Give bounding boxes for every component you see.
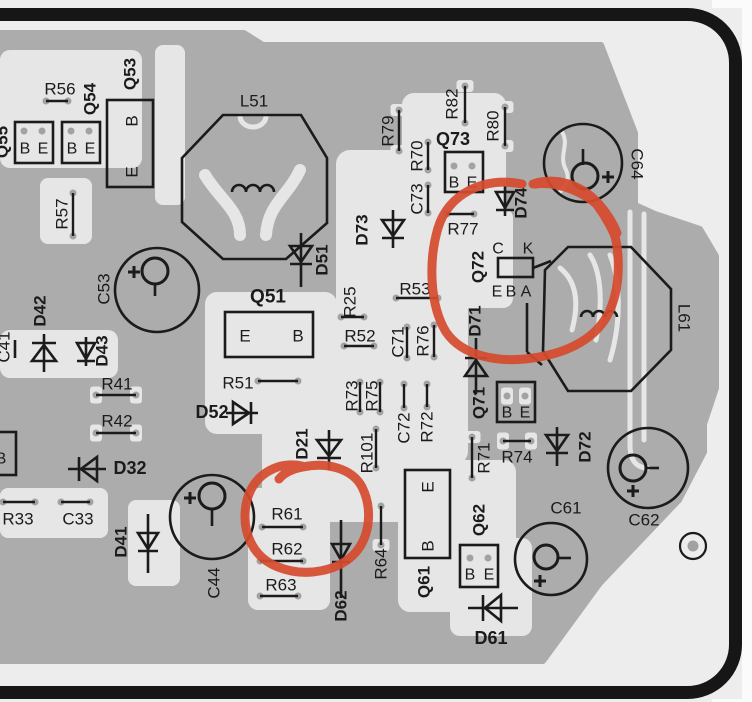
label-B-71: B: [292, 327, 303, 346]
label-D74-27: D74: [512, 187, 531, 219]
label-E-69: E: [123, 166, 142, 177]
label-D21-51: D21: [293, 428, 312, 459]
label-R57-4: R57: [53, 198, 72, 229]
label-Q53-3: Q53: [121, 58, 140, 90]
label-B-32: B: [506, 284, 517, 301]
label-D41-56: D41: [112, 526, 131, 557]
label-E-78: E: [419, 481, 438, 492]
label-R72-18: R72: [418, 411, 437, 442]
label-C61-42: C61: [550, 499, 581, 518]
label-D51-6: D51: [313, 244, 332, 275]
label-R62-49: R62: [271, 540, 302, 559]
label-B-64: B: [20, 141, 31, 158]
label-L61-36: L61: [675, 304, 694, 332]
label-C62-41: C62: [628, 511, 659, 530]
label-Q71-37: Q71: [470, 387, 489, 419]
label-E-77: E: [484, 567, 495, 584]
label-E-70: E: [239, 327, 250, 346]
label-D32-55: D32: [113, 458, 146, 478]
page-corner-white-top: [712, 0, 752, 8]
label-R56-1: R56: [44, 80, 75, 99]
label-Q62-43: Q62: [470, 504, 489, 536]
label-B-72: B: [449, 175, 460, 192]
label-E-65: E: [38, 141, 49, 158]
label-D72-40: D72: [576, 431, 595, 462]
label-B-74: B: [502, 405, 513, 422]
label-R25-10: R25: [341, 286, 360, 317]
label-R51-8: R51: [222, 374, 253, 393]
label-L51-5: L51: [240, 92, 268, 111]
label-Q73-26: Q73: [436, 129, 470, 149]
label-Q55-0: Q55: [0, 126, 12, 158]
label-R76-14: R76: [414, 325, 433, 356]
label-D43-59: D43: [93, 335, 112, 366]
label-R71-38: R71: [475, 442, 494, 473]
label-B-66: B: [67, 141, 78, 158]
label-R61-48: R61: [271, 505, 302, 524]
label-R73-15: R73: [343, 380, 362, 411]
label-C71-13: C71: [389, 326, 408, 357]
label-R77-20: R77: [447, 220, 478, 239]
label-Q54-2: Q54: [81, 82, 100, 115]
page-edge-white: [742, 0, 752, 702]
label-Q51-7: Q51: [250, 287, 286, 308]
label-R63-50: R63: [265, 576, 296, 595]
pcb-layout-svg: Q55R56Q54Q53R57L51D51Q51R51D52R25R52R53C…: [0, 0, 752, 702]
label-D73-19: D73: [353, 214, 372, 245]
label-R80-25: R80: [484, 110, 503, 141]
label-R52-11: R52: [344, 327, 375, 346]
label-D42-58: D42: [31, 295, 50, 326]
label-B-80: B: [0, 451, 6, 468]
label-E-67: E: [85, 141, 96, 158]
pcb-diagram: Q55R56Q54Q53R57L51D51Q51R51D52R25R52R53C…: [0, 0, 752, 702]
label-C64-28: C64: [628, 148, 647, 179]
label-B-79: B: [419, 540, 438, 551]
label-R64-46: R64: [372, 548, 391, 579]
label-R70-22: R70: [408, 140, 427, 171]
label-E-75: E: [520, 405, 531, 422]
label-R75-16: R75: [363, 380, 382, 411]
label-R41-61: R41: [101, 375, 132, 394]
label-D61-45: D61: [474, 628, 507, 648]
label-A-33: A: [521, 284, 532, 301]
label-B-76: B: [465, 567, 476, 584]
label-E-31: E: [492, 284, 503, 301]
label-Q61-44: Q61: [415, 566, 434, 598]
label-R101-52: R101: [358, 433, 377, 474]
label-C53-63: C53: [95, 273, 114, 304]
label-C-29: C: [492, 241, 504, 258]
label-C72-17: C72: [395, 412, 414, 443]
label-D62-47: D62: [332, 590, 351, 621]
label-R79-23: R79: [379, 115, 398, 146]
label-C44-57: C44: [205, 567, 224, 598]
label-C41-60: C41: [0, 331, 14, 362]
label-D71-35: D71: [466, 305, 485, 336]
label-D52-9: D52: [195, 402, 228, 422]
label-R53-12: R53: [399, 280, 430, 299]
label-Q72-34: Q72: [469, 251, 488, 283]
label-R74-39: R74: [501, 448, 532, 467]
label-C73-21: C73: [408, 183, 427, 214]
label-C33-54: C33: [62, 510, 93, 529]
label-R42-62: R42: [101, 412, 132, 431]
label-B-68: B: [123, 115, 142, 126]
label-R82-24: R82: [443, 88, 462, 119]
label-R33-53: R33: [2, 510, 33, 529]
label-K-30: K: [523, 241, 534, 258]
